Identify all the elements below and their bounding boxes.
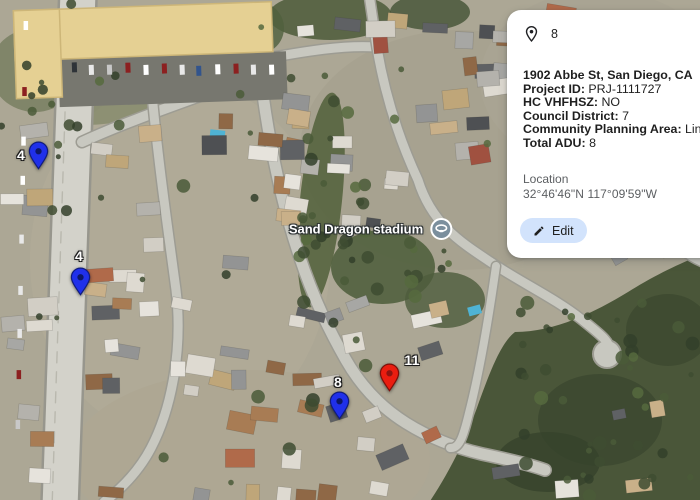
card-field-row: Community Planning Area: Linda Vista — [523, 123, 700, 137]
info-card: 8 1902 Abbe St, San Diego, CA Project ID… — [507, 10, 700, 258]
property-address: 1902 Abbe St, San Diego, CA — [523, 69, 700, 83]
map-pin-4-blue[interactable] — [70, 267, 91, 296]
apartment-block — [13, 1, 287, 108]
card-header: 8 — [521, 23, 700, 43]
edit-label: Edit — [552, 224, 574, 238]
card-field-row: Total ADU: 8 — [523, 137, 700, 151]
field-value: 8 — [586, 136, 596, 150]
map-pin-4-blue[interactable] — [28, 141, 49, 170]
pencil-icon — [533, 225, 545, 237]
field-label: Project ID: — [523, 82, 585, 96]
coordinates: 32°46'46"N 117°09'59"W — [523, 187, 700, 202]
location-pin-icon — [524, 25, 539, 43]
map-view: Sand Dragon stadium 4 4 8 11 8 1902 Abbe… — [0, 0, 700, 500]
pin-count: 8 — [551, 27, 558, 41]
field-value: NO — [598, 95, 620, 109]
card-field-row: Project ID: PRJ-1111727 — [523, 83, 700, 97]
card-body: 1902 Abbe St, San Diego, CA Project ID: … — [521, 69, 700, 151]
location-label: Location — [523, 172, 700, 187]
map-pin-8-blue[interactable] — [329, 391, 350, 420]
field-value: Linda Vista — [682, 122, 700, 136]
field-value: PRJ-1111727 — [585, 82, 661, 96]
card-field-row: HC VHFHSZ: NO — [523, 96, 700, 110]
field-value: 7 — [619, 109, 629, 123]
field-label: Total ADU: — [523, 136, 586, 150]
map-pin-11-red[interactable] — [379, 363, 400, 392]
field-label: Community Planning Area: — [523, 122, 682, 136]
edit-button[interactable]: Edit — [520, 218, 587, 243]
location-block: Location 32°46'46"N 117°09'59"W — [521, 172, 700, 202]
field-label: Council District: — [523, 109, 619, 123]
property-fields: Project ID: PRJ-1111727HC VHFHSZ: NOCoun… — [523, 83, 700, 151]
field-label: HC VHFHSZ: — [523, 95, 598, 109]
card-field-row: Council District: 7 — [523, 110, 700, 124]
